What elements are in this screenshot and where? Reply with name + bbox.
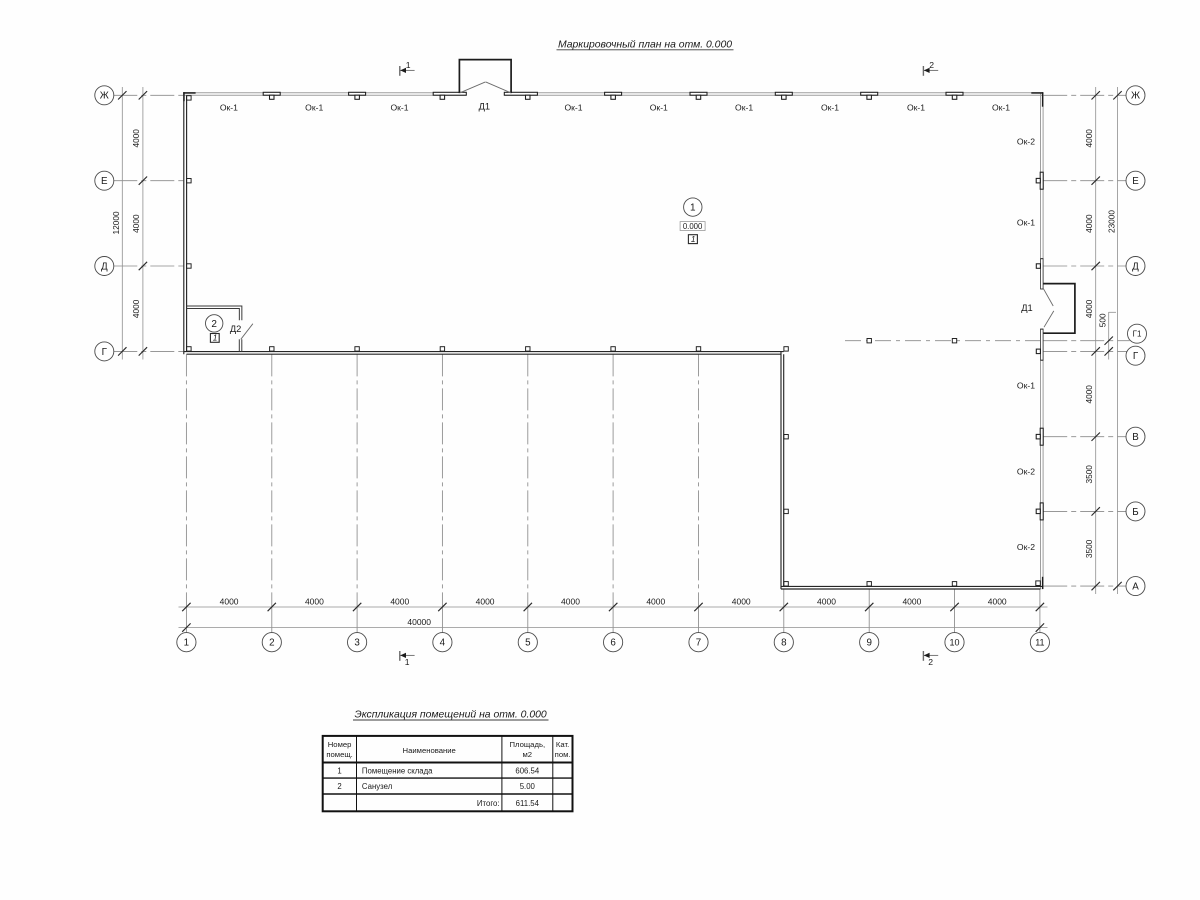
svg-text:Г1: Г1 — [1133, 330, 1142, 339]
svg-text:Ок-1: Ок-1 — [992, 102, 1010, 112]
svg-text:3500: 3500 — [1084, 465, 1094, 484]
svg-text:4000: 4000 — [732, 597, 751, 607]
svg-text:1: 1 — [337, 766, 341, 775]
svg-text:помещ.: помещ. — [326, 750, 352, 759]
svg-text:3: 3 — [354, 638, 360, 649]
svg-text:Ок-1: Ок-1 — [650, 102, 668, 112]
svg-text:Ок-1: Ок-1 — [1017, 381, 1035, 391]
svg-text:4000: 4000 — [131, 299, 141, 318]
svg-text:Маркировочный план на отм. 0.0: Маркировочный план на отм. 0.000 — [558, 39, 732, 50]
svg-text:Г: Г — [1133, 351, 1139, 362]
svg-text:2: 2 — [928, 657, 933, 667]
svg-text:500: 500 — [1097, 313, 1107, 327]
svg-text:Д1: Д1 — [479, 102, 490, 112]
svg-text:4000: 4000 — [1084, 214, 1094, 233]
svg-text:606.54: 606.54 — [515, 766, 540, 775]
svg-text:2: 2 — [337, 782, 341, 791]
svg-text:4000: 4000 — [988, 597, 1007, 607]
svg-text:Г: Г — [102, 347, 108, 358]
svg-text:Ок-1: Ок-1 — [1017, 218, 1035, 228]
svg-text:4000: 4000 — [561, 597, 580, 607]
svg-text:Ок-1: Ок-1 — [907, 102, 925, 112]
svg-text:Площадь,: Площадь, — [509, 740, 545, 749]
svg-text:6: 6 — [610, 638, 616, 649]
svg-text:1: 1 — [690, 203, 696, 214]
svg-text:Кат.: Кат. — [556, 740, 569, 749]
svg-text:40000: 40000 — [407, 617, 431, 627]
svg-text:4000: 4000 — [220, 597, 239, 607]
svg-text:4000: 4000 — [902, 597, 921, 607]
svg-text:Ок-2: Ок-2 — [1017, 542, 1035, 552]
svg-text:3500: 3500 — [1084, 539, 1094, 558]
svg-text:А: А — [1132, 582, 1139, 593]
svg-text:Б: Б — [1132, 507, 1138, 518]
svg-text:Ок-1: Ок-1 — [305, 102, 323, 112]
svg-text:0.000: 0.000 — [683, 222, 703, 231]
svg-text:7: 7 — [696, 638, 701, 649]
svg-text:В: В — [1132, 432, 1139, 443]
svg-text:5.00: 5.00 — [520, 782, 536, 791]
svg-text:4000: 4000 — [131, 214, 141, 233]
svg-text:4: 4 — [440, 638, 446, 649]
svg-text:Ок-1: Ок-1 — [390, 102, 408, 112]
svg-text:Номер: Номер — [328, 740, 352, 749]
svg-text:Д: Д — [101, 261, 108, 272]
svg-text:2: 2 — [211, 319, 217, 330]
svg-text:Ж: Ж — [100, 91, 109, 102]
svg-text:Ж: Ж — [1131, 91, 1140, 102]
svg-text:Е: Е — [1132, 176, 1139, 187]
svg-text:4000: 4000 — [1084, 299, 1094, 318]
svg-text:Ок-1: Ок-1 — [735, 102, 753, 112]
svg-text:Ок-2: Ок-2 — [1017, 136, 1035, 146]
svg-text:Экспликация помещений на отм.: Экспликация помещений на отм. 0.000 — [355, 710, 547, 721]
svg-text:4000: 4000 — [305, 597, 324, 607]
svg-text:Ок-1: Ок-1 — [821, 102, 839, 112]
svg-text:2: 2 — [269, 638, 274, 649]
svg-text:5: 5 — [525, 638, 531, 649]
svg-text:Ок-1: Ок-1 — [564, 102, 582, 112]
svg-text:Д: Д — [1132, 261, 1139, 272]
svg-text:4000: 4000 — [817, 597, 836, 607]
svg-text:4000: 4000 — [1084, 385, 1094, 404]
svg-text:Е: Е — [101, 176, 108, 187]
svg-text:Д2: Д2 — [230, 324, 241, 334]
svg-text:10: 10 — [949, 637, 959, 647]
svg-text:пом.: пом. — [555, 750, 571, 759]
svg-text:1: 1 — [213, 333, 218, 343]
svg-text:Итого:: Итого: — [477, 799, 500, 808]
svg-text:23000: 23000 — [1106, 210, 1116, 233]
svg-text:1: 1 — [184, 638, 189, 649]
svg-text:м2: м2 — [523, 750, 533, 759]
svg-text:Д1: Д1 — [1021, 303, 1032, 313]
svg-text:4000: 4000 — [390, 597, 409, 607]
svg-text:Ок-2: Ок-2 — [1017, 467, 1035, 477]
svg-text:4000: 4000 — [646, 597, 665, 607]
svg-text:Помещение склада: Помещение склада — [362, 766, 433, 775]
svg-text:4000: 4000 — [476, 597, 495, 607]
svg-text:11: 11 — [1035, 637, 1044, 647]
svg-text:1: 1 — [406, 60, 411, 70]
svg-text:611.54: 611.54 — [516, 799, 540, 808]
svg-text:Санузел: Санузел — [362, 782, 393, 791]
svg-text:1: 1 — [405, 657, 410, 667]
svg-text:9: 9 — [866, 638, 871, 649]
svg-text:8: 8 — [781, 638, 787, 649]
svg-text:4000: 4000 — [131, 129, 141, 148]
svg-text:4000: 4000 — [1084, 129, 1094, 148]
svg-text:12000: 12000 — [111, 211, 121, 234]
svg-text:Наименование: Наименование — [403, 746, 456, 755]
svg-text:1: 1 — [691, 234, 696, 244]
svg-text:Ок-1: Ок-1 — [220, 102, 238, 112]
svg-text:2: 2 — [929, 60, 934, 70]
